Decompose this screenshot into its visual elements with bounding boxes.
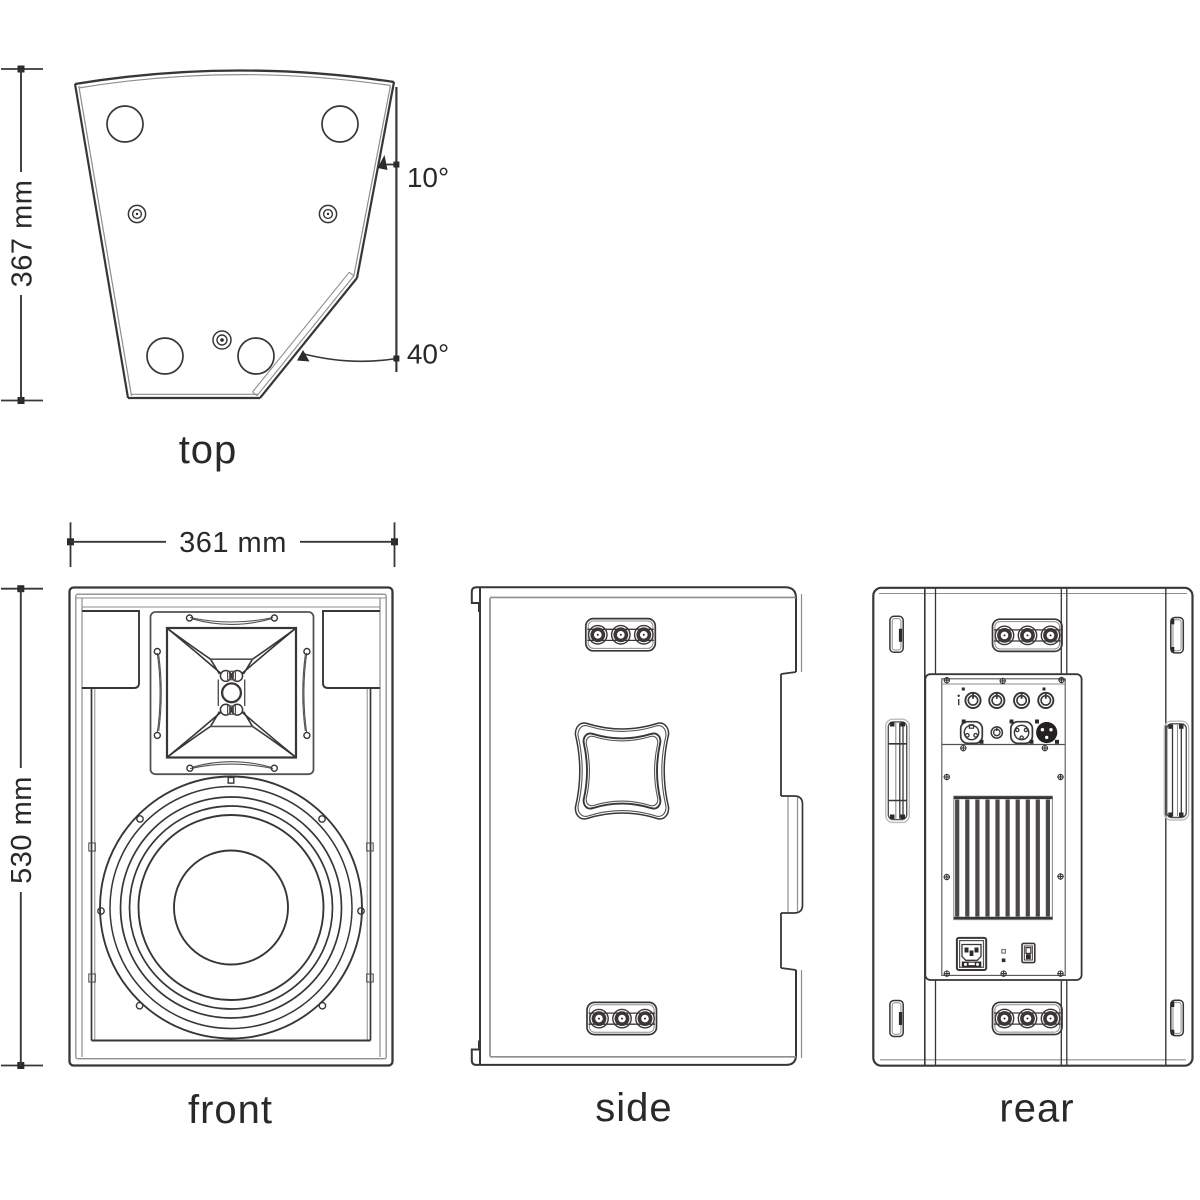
svg-text:361 mm: 361 mm (179, 527, 287, 559)
svg-text:top: top (179, 428, 238, 472)
svg-text:side: side (595, 1086, 672, 1130)
svg-text:front: front (188, 1088, 273, 1132)
svg-text:530 mm: 530 mm (6, 776, 38, 884)
svg-text:367 mm: 367 mm (7, 180, 39, 288)
svg-text:40°: 40° (407, 339, 449, 370)
svg-text:10°: 10° (407, 162, 449, 193)
svg-text:rear: rear (999, 1087, 1074, 1131)
